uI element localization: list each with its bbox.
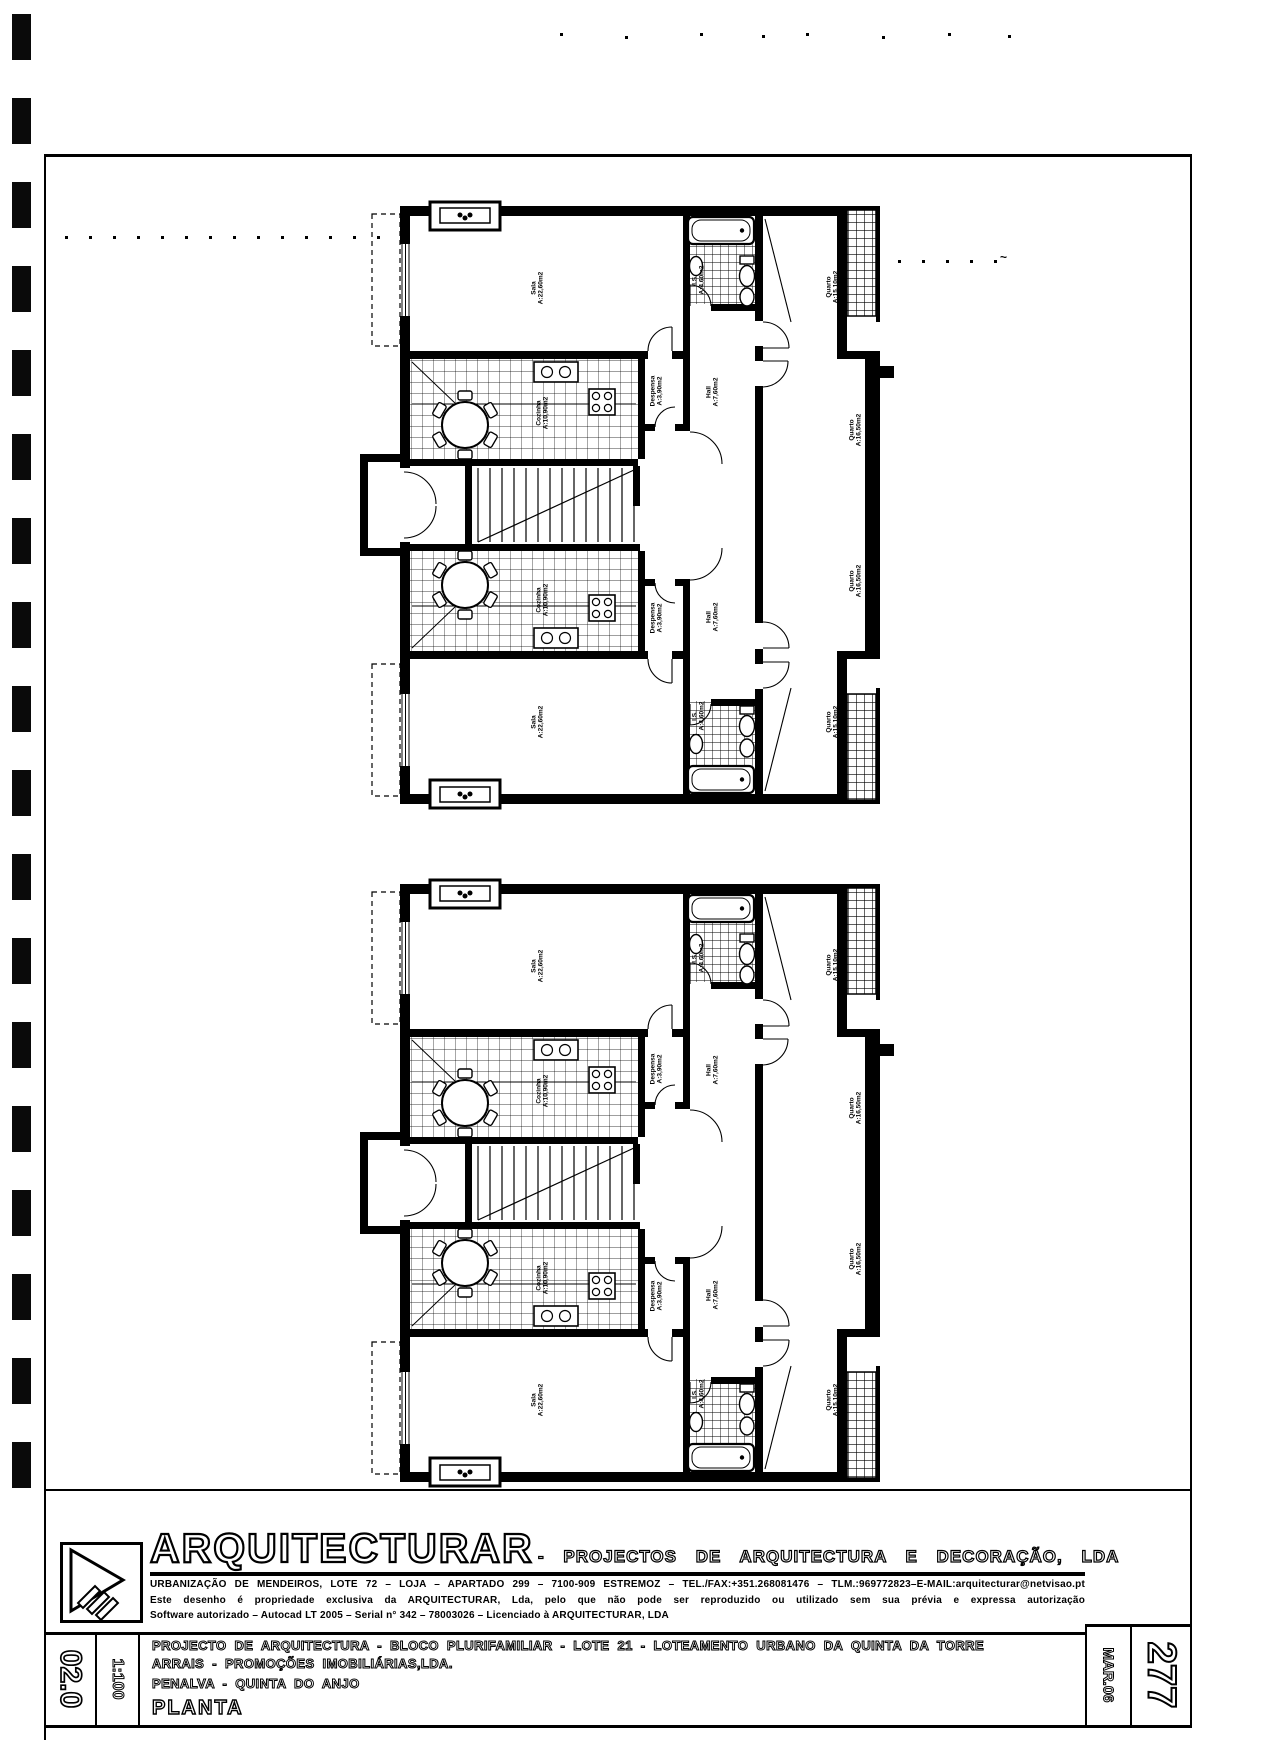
room-label-sala: SalaA:22,60m2 [531, 272, 546, 305]
software-line: Software autorizado – Autocad LT 2005 – … [150, 1610, 1085, 1623]
room-label-cozinha: CozinhaA:10,90m2 [536, 397, 551, 430]
room-label-hall: HallA:7,60m2 [706, 1056, 721, 1085]
strip-divider [138, 1632, 140, 1725]
room-label-hall: HallA:7,60m2 [706, 1281, 721, 1310]
logo-triangle-icon [63, 1545, 140, 1620]
strip-divider [95, 1632, 97, 1725]
arquitecturar-logo [60, 1542, 143, 1623]
firm-address: URBANIZAÇÃO DE MENDEIROS, LOTE 72 – LOJA… [150, 1579, 1085, 1592]
titleblock-top-rule [44, 1489, 1192, 1491]
room-label-sala: SalaA:22,60m2 [531, 706, 546, 739]
room-label-quarto: QuartoA:15,10m2 [826, 271, 841, 304]
room-label-despensa: DespensaA:3,90m2 [650, 376, 665, 407]
room-label-cozinha: CozinhaA:10,90m2 [536, 1262, 551, 1295]
room-label-hall: HallA:7,60m2 [706, 378, 721, 407]
room-label-is: I.S.A:4,60m2 [692, 266, 707, 295]
room-label-is: I.S.A:4,60m2 [692, 944, 707, 973]
room-label-quarto: QuartoA:15,10m2 [826, 706, 841, 739]
pagebox-divider [1085, 1624, 1087, 1725]
room-label-quarto: QuartoA:15,10m2 [826, 1384, 841, 1417]
strip-top-rule [44, 1632, 1085, 1635]
drawing-scale: 1:100 [108, 1659, 126, 1700]
firm-name: ARQUITECTURAR [150, 1525, 534, 1571]
sheet-number: 02.0 [53, 1650, 87, 1708]
room-label-is: I.S.A:4,60m2 [692, 1380, 707, 1409]
room-label-hall: HallA:7,60m2 [706, 603, 721, 632]
strip-bottom-rule [44, 1725, 1192, 1728]
drawing-sheet: ~ [0, 0, 1276, 1749]
room-label-despensa: DespensaA:3,90m2 [650, 603, 665, 634]
page-number: 277 [1139, 1642, 1184, 1709]
titleblock-text: ARQUITECTURAR - PROJECTOS DE ARQUITECTUR… [150, 1528, 1085, 1623]
sheet-date: MAR.06 [1100, 1647, 1117, 1702]
project-title-line: PROJECTO DE ARQUITECTURA - BLOCO PLURIFA… [152, 1638, 984, 1653]
room-label-cozinha: CozinhaA:10,90m2 [536, 584, 551, 617]
room-label-sala: SalaA:22,60m2 [531, 950, 546, 983]
location-line: PENALVA - QUINTA DO ANJO [152, 1676, 360, 1691]
floor-plans-canvas [0, 0, 1276, 1749]
room-label-quarto: QuartoA:16,50m2 [849, 1092, 864, 1125]
room-label-cozinha: CozinhaA:10,90m2 [536, 1075, 551, 1108]
room-label-quarto: QuartoA:16,50m2 [849, 1243, 864, 1276]
room-label-quarto: QuartoA:16,50m2 [849, 565, 864, 598]
room-label-quarto: QuartoA:16,50m2 [849, 414, 864, 447]
copyright-notice: Este desenho é propriedade exclusiva da … [150, 1595, 1085, 1608]
room-label-despensa: DespensaA:3,90m2 [650, 1281, 665, 1312]
room-label-quarto: QuartoA:15,10m2 [826, 949, 841, 982]
client-line: ARRAIS - PROMOÇÕES IMOBILIÁRIAS,LDA. [152, 1656, 453, 1671]
pagebox-top-rule [1085, 1624, 1192, 1627]
drawing-title: PLANTA [152, 1697, 244, 1720]
room-label-sala: SalaA:22,60m2 [531, 1384, 546, 1417]
pagebox-divider [1130, 1624, 1132, 1725]
firm-suffix: - PROJECTOS DE ARQUITECTURA E DECORAÇÃO,… [538, 1547, 1119, 1566]
room-label-is: I.S.A:4,60m2 [692, 702, 707, 731]
room-label-despensa: DespensaA:3,90m2 [650, 1054, 665, 1085]
